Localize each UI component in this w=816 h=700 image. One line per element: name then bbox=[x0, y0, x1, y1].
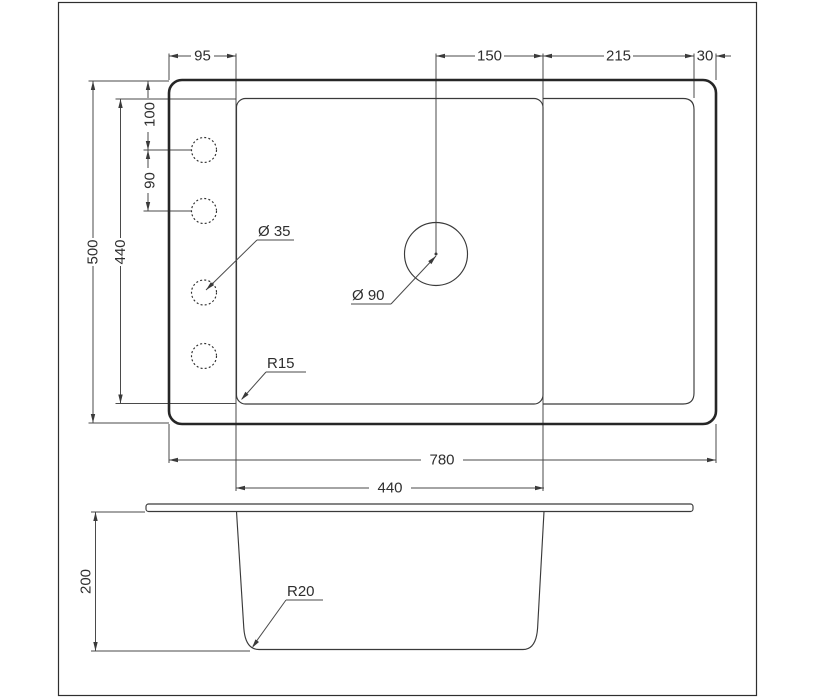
dim-440-bottom-label: 440 bbox=[377, 480, 402, 497]
dim-150-label: 150 bbox=[477, 48, 502, 65]
faucet-hole-2 bbox=[192, 199, 217, 224]
dim-100-label: 100 bbox=[142, 102, 159, 127]
dimensions-left: 500 440 100 90 bbox=[85, 81, 159, 423]
technical-drawing: 95 150 215 30 500 440 bbox=[0, 0, 816, 700]
section-bowl-profile bbox=[237, 512, 545, 650]
dim-200-label: 200 bbox=[78, 569, 95, 594]
technical-drawing-page: 95 150 215 30 500 440 bbox=[0, 0, 816, 700]
dim-215-label: 215 bbox=[606, 48, 631, 65]
top-view: 95 150 215 30 500 440 bbox=[85, 48, 732, 497]
faucet-hole-1 bbox=[192, 138, 217, 163]
label-faucet-hole: Ø 35 bbox=[206, 223, 294, 290]
dimensions-top: 95 150 215 30 bbox=[169, 48, 731, 65]
faucet-hole-4 bbox=[192, 344, 217, 369]
sink-outer-outline bbox=[169, 80, 716, 424]
dim-500-label: 500 bbox=[85, 239, 102, 264]
faucet-hole-diameter-label: Ø 35 bbox=[258, 223, 291, 240]
drain-diameter-label: Ø 90 bbox=[352, 287, 385, 304]
page-frame-border bbox=[59, 3, 757, 696]
dim-780-label: 780 bbox=[429, 452, 454, 469]
bottom-radius-label: R20 bbox=[287, 583, 315, 600]
dim-440-left-label: 440 bbox=[112, 239, 129, 264]
drain-center-point bbox=[435, 253, 438, 256]
drainboard-outline bbox=[543, 99, 694, 405]
dimension-depth: 200 bbox=[78, 512, 98, 651]
label-drain: Ø 90 bbox=[351, 256, 436, 304]
dim-30-label: 30 bbox=[697, 48, 714, 65]
section-view: 200 R20 bbox=[78, 504, 694, 651]
dim-90-label: 90 bbox=[142, 172, 159, 189]
section-extension-lines bbox=[91, 512, 250, 651]
section-rim-outline bbox=[146, 504, 693, 512]
corner-radius-label: R15 bbox=[267, 355, 295, 372]
label-corner-radius: R15 bbox=[241, 355, 306, 400]
extension-lines bbox=[89, 54, 717, 492]
dimensions-bottom: 780 440 bbox=[169, 452, 716, 497]
label-bottom-radius: R20 bbox=[252, 583, 323, 648]
dim-95-label: 95 bbox=[194, 48, 211, 65]
